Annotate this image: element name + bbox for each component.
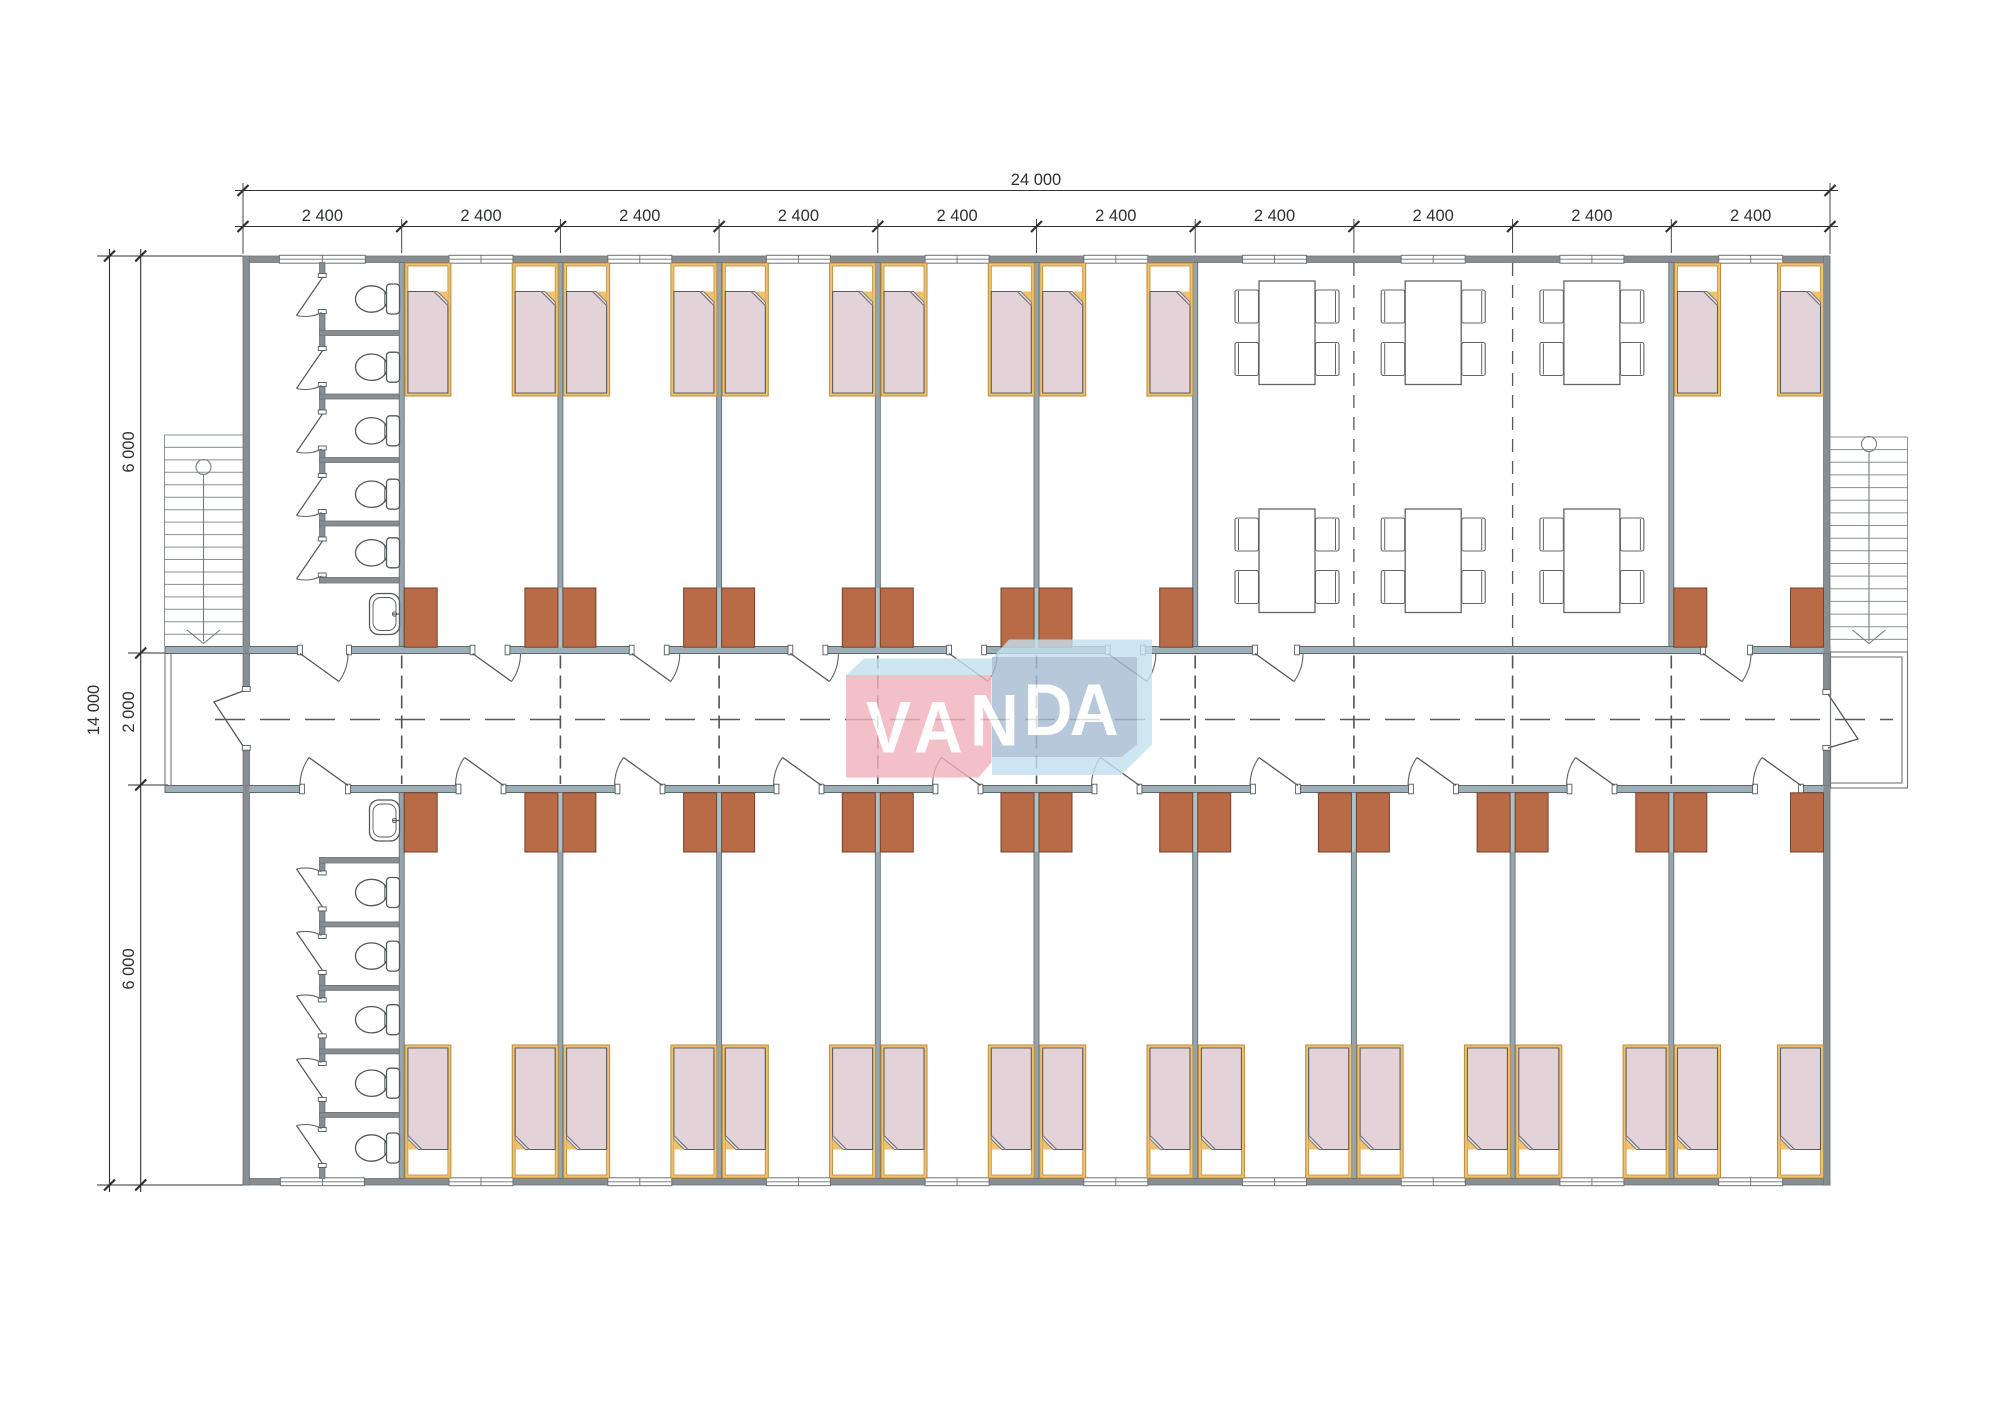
svg-text:V: V	[866, 686, 911, 768]
svg-text:2 400: 2 400	[1571, 207, 1612, 225]
svg-text:14 000: 14 000	[85, 685, 103, 735]
svg-text:2 400: 2 400	[619, 207, 660, 225]
svg-text:2 400: 2 400	[302, 207, 343, 225]
svg-text:6 000: 6 000	[120, 431, 138, 472]
svg-text:D: D	[1023, 669, 1072, 751]
svg-text:2 400: 2 400	[778, 207, 819, 225]
svg-text:6 000: 6 000	[120, 948, 138, 989]
svg-text:A: A	[914, 686, 963, 768]
svg-text:2 400: 2 400	[1254, 207, 1295, 225]
svg-text:N: N	[970, 679, 1019, 761]
svg-text:2 400: 2 400	[460, 207, 501, 225]
svg-text:2 400: 2 400	[1730, 207, 1771, 225]
svg-text:24 000: 24 000	[1011, 171, 1061, 189]
svg-text:A: A	[1070, 669, 1119, 751]
svg-text:2 400: 2 400	[936, 207, 977, 225]
svg-text:2 400: 2 400	[1413, 207, 1454, 225]
svg-text:2 400: 2 400	[1095, 207, 1136, 225]
svg-text:2 000: 2 000	[120, 691, 138, 732]
